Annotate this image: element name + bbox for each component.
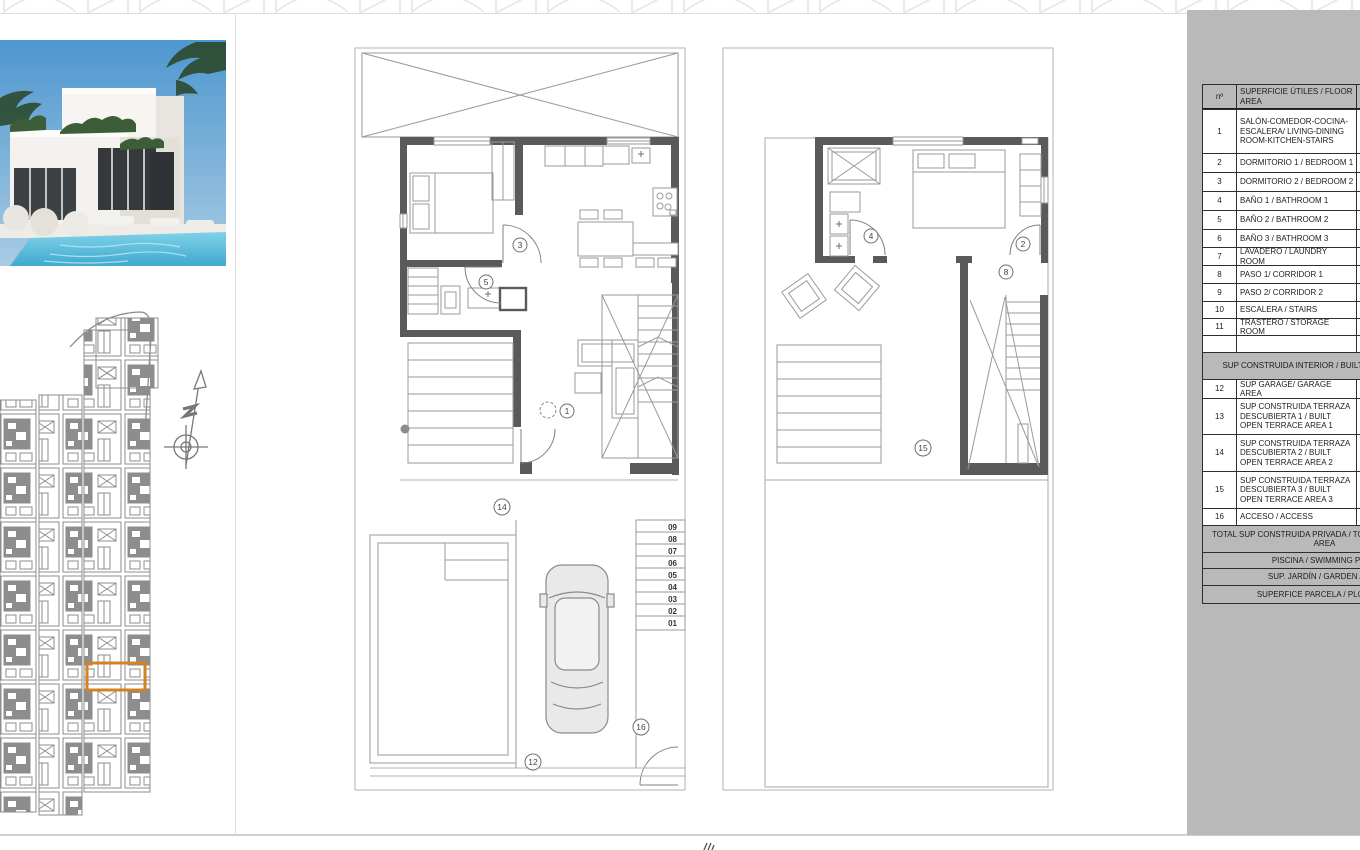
- table-header-row: nº SUPERFICIE ÚTILES / FLOOR AREA: [1202, 84, 1360, 110]
- table-row: 12 SUP GARAGE/ GARAGE AREA: [1202, 379, 1360, 399]
- header-label: SUPERFICIE ÚTILES / FLOOR AREA: [1237, 85, 1357, 108]
- svg-text:07: 07: [668, 547, 677, 556]
- table-row: 5 BAÑO 2 / BATHROOM 2: [1202, 210, 1360, 230]
- svg-text:12: 12: [528, 757, 538, 767]
- north-arrow-icon: [164, 371, 208, 469]
- table-row: 2 DORMITORIO 1 / BEDROOM 1: [1202, 153, 1360, 173]
- total-private-area-row: TOTAL SUP CONSTRUIDA PRIVADA / TOTAL BUI…: [1202, 525, 1360, 553]
- table-row: 13 SUP CONSTRUIDA TERRAZA DESCUBIERTA 1 …: [1202, 398, 1360, 435]
- svg-text:8: 8: [1004, 267, 1009, 277]
- car-icon: [540, 565, 614, 733]
- svg-text:04: 04: [668, 583, 677, 592]
- svg-text:2: 2: [1021, 239, 1026, 249]
- plan-sheet: { "colors": { "sidebar_bg": "#b9b9b9", "…: [0, 0, 1360, 850]
- area-table: nº SUPERFICIE ÚTILES / FLOOR AREA 1 SALÓ…: [1202, 84, 1360, 604]
- table-row: 4 BAÑO 1 / BATHROOM 1: [1202, 191, 1360, 211]
- table-row: 8 PASO 1/ CORRIDOR 1: [1202, 265, 1360, 284]
- svg-text:08: 08: [668, 535, 677, 544]
- pool-area-row: PISCINA / SWIMMING POOL: [1202, 552, 1360, 569]
- svg-text:02: 02: [668, 607, 677, 616]
- garden-area-row: SUP. JARDÍN / GARDEN AREA: [1202, 568, 1360, 586]
- bathroom-fixtures: [408, 268, 526, 314]
- ground-floor-plan: 3 5 1 14 12 16 09 08 07 06 05 04 03 02 0…: [350, 42, 688, 794]
- plot-area-row: SUPERFICE PARCELA / PLOT AREA: [1202, 585, 1360, 604]
- svg-text:15: 15: [918, 443, 928, 453]
- wardrobe: [492, 142, 514, 200]
- table-row: 15 SUP CONSTRUIDA TERRAZA DESCUBIERTA 3 …: [1202, 471, 1360, 509]
- svg-text:16: 16: [636, 722, 646, 732]
- staircase: [968, 295, 1040, 469]
- table-row: 1 SALÓN-COMEDOR-COCINA-ESCALERA/ LIVING-…: [1202, 109, 1360, 154]
- sheet-bottom-rule: [0, 834, 1360, 836]
- subtotal-empty-row: [1202, 335, 1360, 353]
- bed: [410, 173, 493, 233]
- pool-patio: [370, 535, 516, 763]
- sheet-top-rule: [0, 13, 1360, 14]
- deck-stripes: [401, 343, 514, 463]
- svg-text:05: 05: [668, 571, 677, 580]
- svg-text:3: 3: [518, 240, 523, 250]
- room-number-labels: 4 2 8 15: [864, 229, 1030, 456]
- step-numbers: 09 08 07 06 05 04 03 02 01: [668, 523, 677, 628]
- watermark-letters: [0, 0, 1360, 14]
- table-row: 10 ESCALERA / STAIRS: [1202, 301, 1360, 319]
- site-plan: [0, 305, 218, 817]
- dining-table: [578, 210, 676, 267]
- interior-area-header: SUP CONSTRUIDA INTERIOR / BUILT INTERIOR…: [1202, 352, 1360, 380]
- villa-photo: [0, 40, 226, 266]
- svg-text:1: 1: [565, 406, 570, 416]
- sheet-bottom-mark: [698, 842, 722, 850]
- svg-text:01: 01: [668, 619, 677, 628]
- site-units: [0, 318, 158, 815]
- svg-text:4: 4: [869, 231, 874, 241]
- header-no: nº: [1203, 85, 1237, 108]
- svg-text:03: 03: [668, 595, 677, 604]
- table-row: 6 BAÑO 3 / BATHROOM 3: [1202, 229, 1360, 248]
- lounge-chairs: [782, 265, 880, 318]
- svg-text:14: 14: [497, 502, 507, 512]
- sheet-frame-line: [235, 13, 236, 835]
- wardrobe: [1020, 154, 1041, 216]
- area-schedule-sidebar: nº SUPERFICIE ÚTILES / FLOOR AREA 1 SALÓ…: [1187, 10, 1360, 835]
- svg-text:06: 06: [668, 559, 677, 568]
- bed: [913, 150, 1005, 228]
- first-floor-plan: 4 2 8 15: [718, 42, 1056, 794]
- ceiling-light-icon: [540, 402, 556, 418]
- table-row: 14 SUP CONSTRUIDA TERRAZA DESCUBIERTA 2 …: [1202, 434, 1360, 472]
- table-row: 16 ACCESO / ACCESS: [1202, 508, 1360, 526]
- table-row: 9 PASO 2/ CORRIDOR 2: [1202, 283, 1360, 302]
- svg-text:5: 5: [484, 277, 489, 287]
- deck-stripes: [777, 345, 881, 463]
- roof-overhang-xbox: [362, 53, 678, 137]
- svg-text:09: 09: [668, 523, 677, 532]
- table-row: 3 DORMITORIO 2 / BEDROOM 2: [1202, 172, 1360, 192]
- table-row: 11 TRASTERO / STORAGE ROOM: [1202, 318, 1360, 336]
- table-row: 7 LAVADERO / LAUNDRY ROOM: [1202, 247, 1360, 266]
